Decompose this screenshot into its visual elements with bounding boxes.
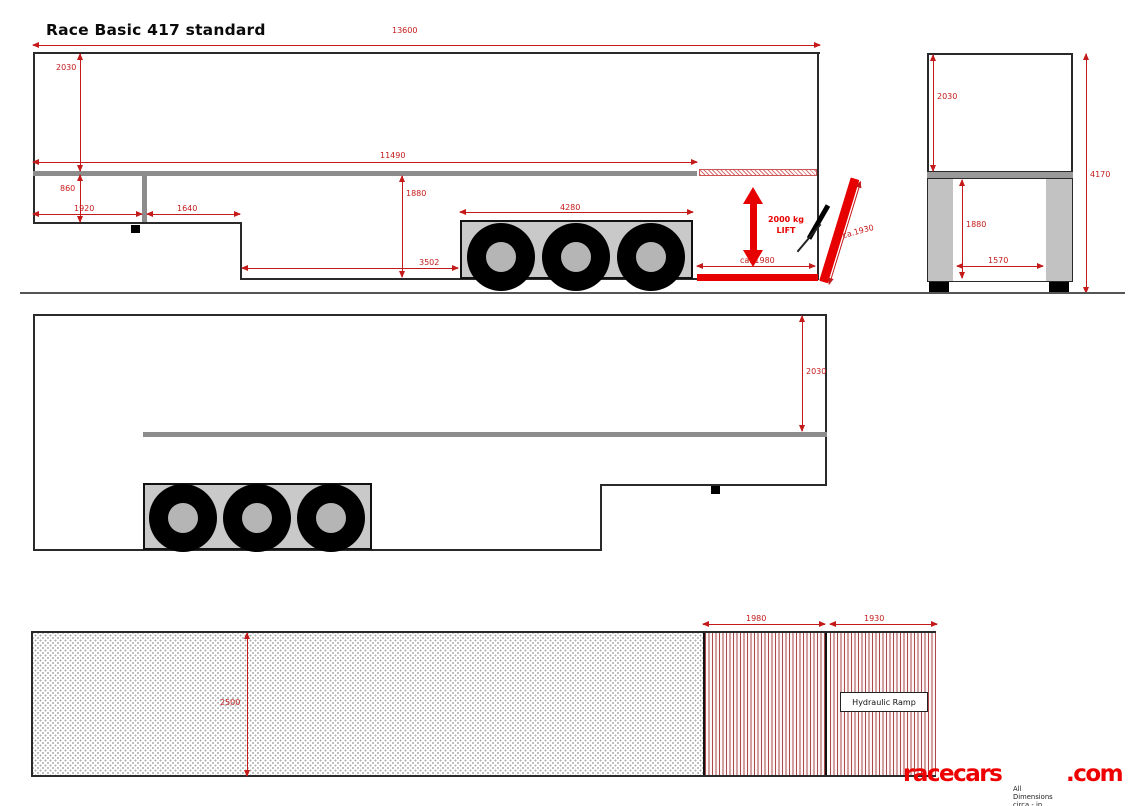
plan-ramp-divider-line [825,633,827,775]
dim-label-rear-inner-width: 1570 [988,256,1008,265]
lift-capacity-label: 2000 kg [764,215,808,225]
rear-upper-box [927,53,1073,173]
dim-line-plan-lift [703,624,825,625]
dim-label-total-length: 13600 [392,26,417,35]
offside-kingpin-marker [711,486,720,494]
side-body-top-line [33,52,820,54]
side-wheel-3-hub [636,242,666,272]
trailer-dimension-drawing: Race Basic 417 standard 13600 11490 2030… [0,0,1140,806]
dim-line-lower-deck [242,268,458,269]
dim-line-plan-width [247,633,248,776]
hydraulic-ramp-label: Hydraulic Ramp [840,692,928,712]
side-body-rear-line [817,52,819,280]
offside-floor-line [143,432,827,437]
side-step-line [240,222,242,280]
dim-line-total-height [1086,54,1087,293]
side-body-front-line [33,52,35,224]
side-wheel-2-hub [561,242,591,272]
page-title: Race Basic 417 standard [46,21,266,39]
dim-line-wheelbox [460,212,693,213]
plan-floor-area [33,633,703,775]
dim-label-gooseneck-height: 860 [60,184,75,193]
offside-wheel-1-hub [168,503,198,533]
side-wheel-3 [617,223,685,291]
rear-right-leg [1046,179,1072,281]
rear-left-leg [928,179,953,281]
dim-label-front-section: 1920 [74,204,94,213]
dimensions-note: All Dimensions circa - in mm [1013,785,1053,806]
dim-line-plan-ramp [830,624,937,625]
side-floor-line [33,171,697,176]
dim-line-rear-upper-height [933,55,934,171]
dim-label-second-section: 1640 [177,204,197,213]
dim-label-floor-length: 11490 [380,151,405,160]
dim-line-offside-height [802,316,803,431]
ground-line [20,292,1125,294]
dim-label-plan-width: 2500 [220,698,240,707]
dim-line-floor-length [33,162,697,163]
offside-wheel-3 [297,484,365,552]
hydraulic-ramp-label-text: Hydraulic Ramp [852,698,916,707]
dim-line-total-length [33,45,820,46]
offside-top-line [33,314,827,316]
dim-label-offside-height: 2030 [806,367,826,376]
dim-label-lower-deck: 3502 [419,258,439,267]
offside-wheel-2-hub [242,503,272,533]
dim-line-rear-inner-width [957,266,1043,267]
dim-line-interior-height [80,54,81,171]
side-lift-raised-hatch [699,169,817,176]
dim-line-front-section [33,214,142,215]
dim-label-total-height: 4170 [1090,170,1110,179]
dim-line-rear-interior-height [402,176,403,277]
offside-step-line [600,484,602,551]
lift-word-label: LIFT [764,226,808,236]
side-wheel-1-hub [486,242,516,272]
side-lift-platform [697,274,818,281]
dim-label-interior-height: 2030 [56,63,76,72]
side-wheel-2 [542,223,610,291]
side-wheel-1 [467,223,535,291]
dim-label-rear-lower-height: 1880 [966,220,986,229]
dim-label-wheelbox: 4280 [560,203,580,212]
offside-right-line [825,314,827,486]
side-gooseneck-bottom-line [33,222,242,224]
dim-label-plan-ramp: 1930 [864,614,884,623]
dim-label-rear-upper-height: 2030 [937,92,957,101]
offside-wheel-1 [149,484,217,552]
dim-line-second-section [147,214,240,215]
offside-wheel-2 [223,484,291,552]
offside-wheel-3-hub [316,503,346,533]
brand-logo-suffix: .com [1066,762,1122,786]
offside-left-line [33,314,35,551]
plan-lift-platform-area [705,633,825,775]
brand-logo-main: racecars [903,762,1001,786]
dim-label-rear-interior-height: 1880 [406,189,426,198]
side-kingpin-marker [131,225,140,233]
dim-label-plan-lift: 1980 [746,614,766,623]
